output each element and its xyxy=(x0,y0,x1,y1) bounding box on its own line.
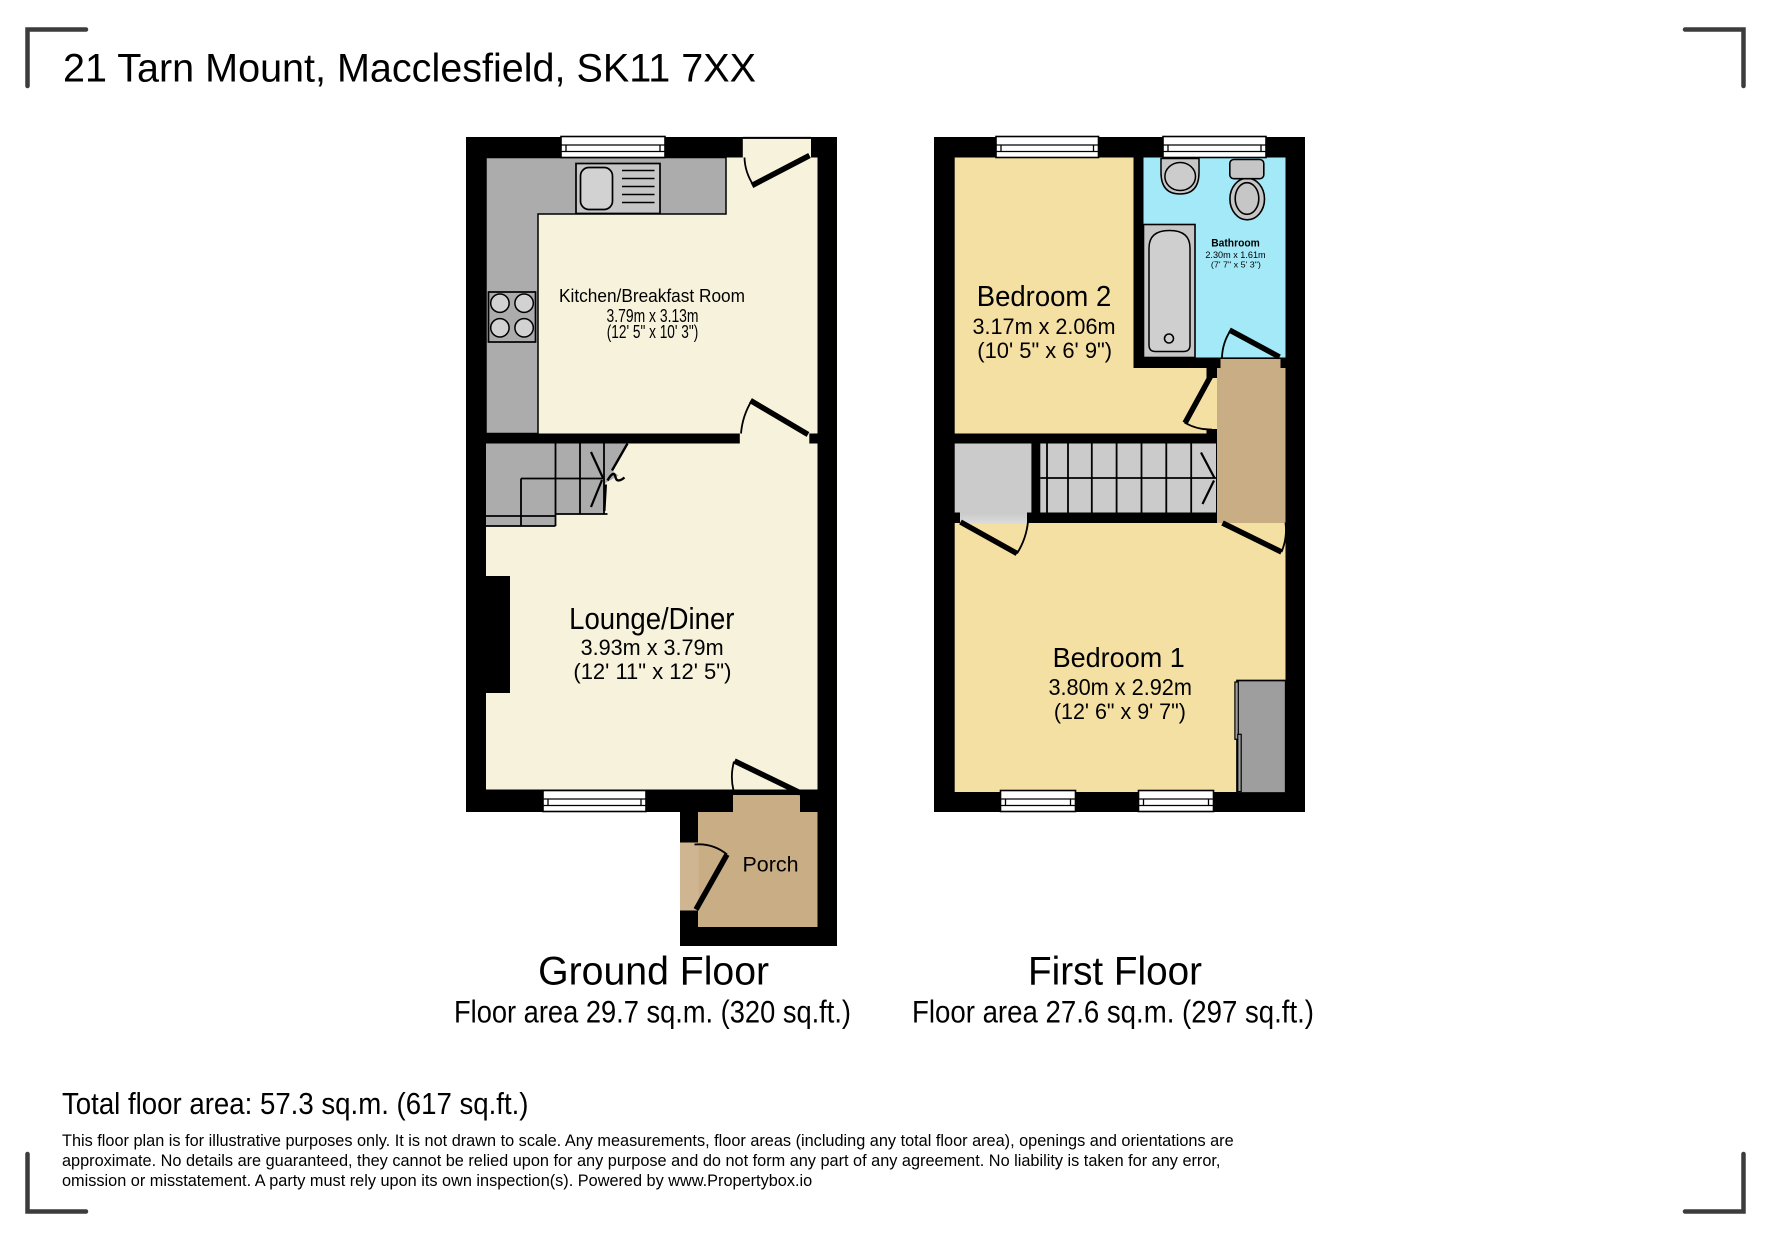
svg-text:Ground Floor: Ground Floor xyxy=(538,950,769,994)
svg-text:Kitchen/Breakfast Room: Kitchen/Breakfast Room xyxy=(559,286,745,306)
svg-text:(12' 5" x 10' 3"): (12' 5" x 10' 3") xyxy=(607,322,699,342)
svg-text:3.80m x 2.92m: 3.80m x 2.92m xyxy=(1048,674,1192,700)
svg-text:approximate. No details are gu: approximate. No details are guaranteed, … xyxy=(62,1152,1220,1170)
svg-text:Bedroom 1: Bedroom 1 xyxy=(1053,642,1185,673)
svg-text:Total floor area: 57.3 sq.m. (: Total floor area: 57.3 sq.m. (617 sq.ft.… xyxy=(62,1087,529,1121)
svg-text:2.30m x 1.61m: 2.30m x 1.61m xyxy=(1205,250,1266,260)
svg-text:First Floor: First Floor xyxy=(1028,950,1202,994)
svg-text:This floor plan is for illustr: This floor plan is for illustrative purp… xyxy=(62,1132,1234,1150)
svg-text:Porch: Porch xyxy=(743,852,799,877)
svg-text:21 Tarn Mount, Macclesfield, S: 21 Tarn Mount, Macclesfield, SK11 7XX xyxy=(63,47,756,91)
svg-text:Lounge/Diner: Lounge/Diner xyxy=(569,602,734,636)
svg-text:(10' 5" x 6' 9"): (10' 5" x 6' 9") xyxy=(977,338,1112,363)
svg-text:Bedroom 2: Bedroom 2 xyxy=(977,281,1112,313)
svg-text:3.93m x 3.79m: 3.93m x 3.79m xyxy=(581,635,724,660)
svg-text:3.17m x 2.06m: 3.17m x 2.06m xyxy=(973,314,1116,339)
svg-text:omission or misstatement. A pa: omission or misstatement. A party must r… xyxy=(62,1172,812,1190)
svg-text:(12' 11" x 12' 5"): (12' 11" x 12' 5") xyxy=(573,659,731,684)
svg-text:Floor area 29.7 sq.m. (320 sq.: Floor area 29.7 sq.m. (320 sq.ft.) xyxy=(454,994,851,1030)
svg-text:Floor area 27.6 sq.m. (297 sq.: Floor area 27.6 sq.m. (297 sq.ft.) xyxy=(912,994,1314,1030)
svg-text:(7' 7" x 5' 3"): (7' 7" x 5' 3") xyxy=(1211,260,1261,270)
svg-text:Bathroom: Bathroom xyxy=(1211,238,1260,250)
svg-text:(12' 6" x 9' 7"): (12' 6" x 9' 7") xyxy=(1054,699,1186,724)
